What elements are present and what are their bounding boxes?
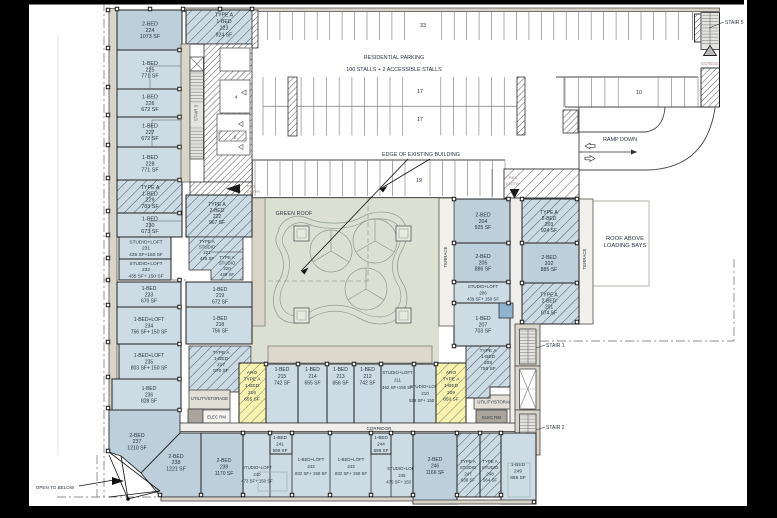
svg-text:TYPE A2-BED201874 SF: TYPE A2-BED201874 SF: [540, 292, 558, 316]
svg-text:GREEN ROOF: GREEN ROOF: [276, 211, 313, 217]
svg-text:10: 10: [636, 90, 642, 96]
svg-text:OPEN TO BELOW: OPEN TO BELOW: [36, 485, 75, 490]
svg-text:100 STALLS + 2 ACCESSIBLE STAL: 100 STALLS + 2 ACCESSIBLE STALLS: [346, 67, 442, 73]
svg-text:4: 4: [235, 95, 238, 101]
svg-text:RAMP DOWN: RAMP DOWN: [603, 137, 637, 143]
svg-text:TERRACE: TERRACE: [582, 248, 587, 269]
svg-text:STAIR 3: STAIR 3: [194, 104, 199, 121]
svg-text:STAIR 2: STAIR 2: [546, 425, 565, 431]
svg-text:STAIR 1: STAIR 1: [546, 343, 565, 349]
svg-text:EGRESS: EGRESS: [701, 61, 719, 66]
svg-text:EDGE OF EXISTING BUILDING: EDGE OF EXISTING BUILDING: [382, 152, 460, 158]
svg-text:RESIDENTIAL PARKING: RESIDENTIAL PARKING: [364, 55, 425, 61]
svg-text:CORRIDOR: CORRIDOR: [366, 426, 392, 431]
svg-text:19: 19: [416, 178, 422, 184]
svg-text:ELEC RM: ELEC RM: [207, 415, 226, 420]
svg-text:STAIR 5: STAIR 5: [725, 20, 744, 26]
svg-text:2: 2: [234, 135, 237, 141]
svg-text:33: 33: [420, 23, 426, 29]
svg-text:17: 17: [417, 117, 423, 123]
svg-text:ROOF ABOVELOADING BAYS: ROOF ABOVELOADING BAYS: [604, 236, 647, 249]
svg-text:17: 17: [417, 89, 423, 95]
svg-text:UTILITY/STORAGE: UTILITY/STORAGE: [477, 400, 514, 405]
svg-text:UTILITY/STORAGE: UTILITY/STORAGE: [191, 396, 228, 401]
svg-text:TERRACE: TERRACE: [443, 246, 448, 267]
svg-text:ELEC RM: ELEC RM: [482, 415, 501, 420]
svg-text:TYPE A2-BED203924 SF: TYPE A2-BED203924 SF: [540, 210, 558, 234]
